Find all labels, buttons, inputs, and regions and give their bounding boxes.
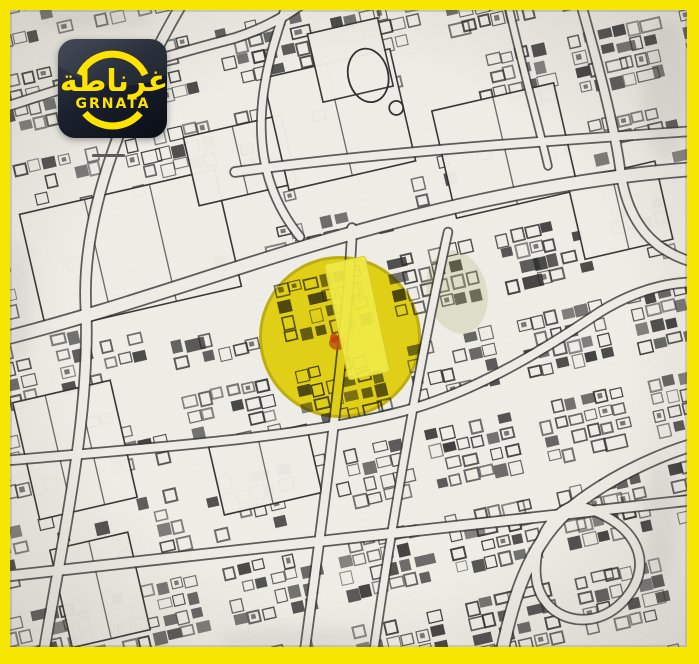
logo-arabic-text: غرناطة	[60, 64, 167, 99]
logo-latin-text: GRNATA	[75, 96, 150, 112]
yellow-border-frame: غرناطة GRNATA	[0, 0, 699, 664]
grnata-logo: غرناطة GRNATA	[58, 39, 167, 138]
logo-underline-dash	[92, 154, 125, 157]
